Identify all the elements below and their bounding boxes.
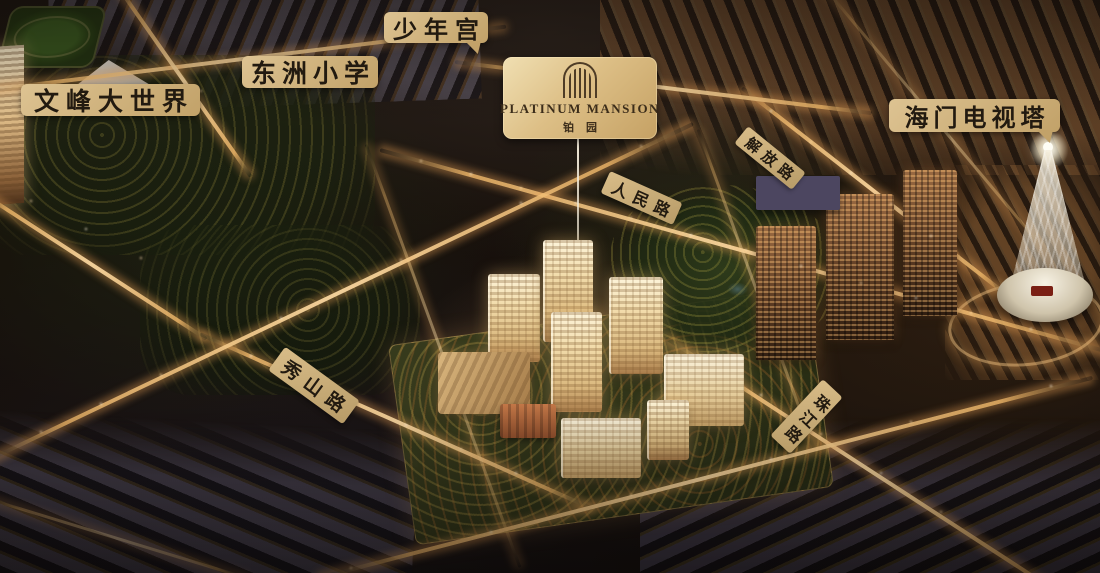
platinum-mansion-plaque: PLATINUM MANSION 铂园 xyxy=(503,57,657,139)
arched-gate-logo-icon xyxy=(560,62,600,98)
landmark-label-text: 海门电视塔 xyxy=(905,98,1050,133)
landmark-label-dongzhou-school: 东洲小学 xyxy=(242,56,378,88)
masterplan-aerial-map: 文峰大世界 东洲小学 少年宫 海门电视塔 人民路 解放路 秀山路 珠江路 PLA… xyxy=(0,0,1100,573)
landmark-label-text: 少年宫 xyxy=(393,10,486,45)
landmark-label-tv-tower: 海门电视塔 xyxy=(889,99,1060,132)
landmark-label-wenfeng-world: 文峰大世界 xyxy=(21,84,200,116)
logo-arch-bars xyxy=(569,68,591,98)
landmark-label-text: 文峰大世界 xyxy=(34,82,194,118)
landmark-label-youth-palace: 少年宫 xyxy=(384,12,488,43)
plaque-title: PLATINUM MANSION xyxy=(500,101,660,117)
plaque-subtitle: 铂园 xyxy=(551,119,609,135)
landmark-label-text: 东洲小学 xyxy=(251,54,375,90)
